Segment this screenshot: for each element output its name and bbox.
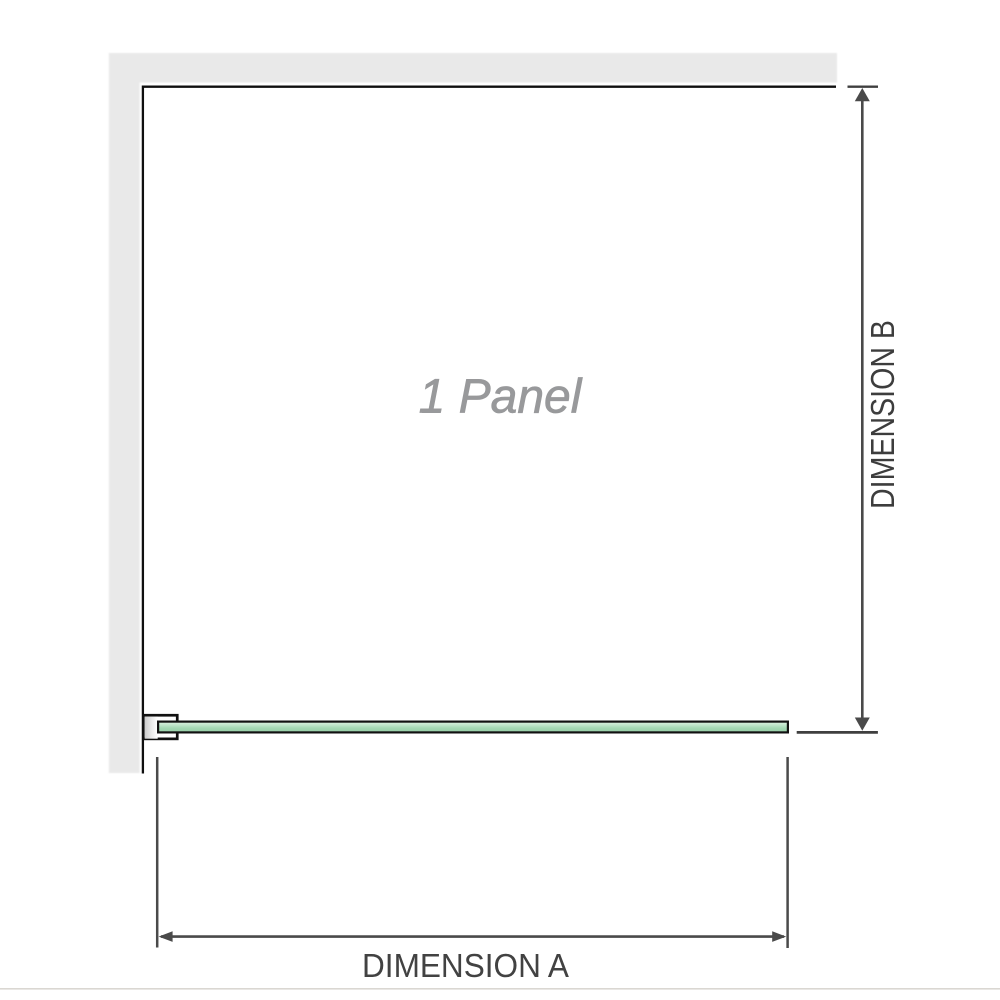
svg-text:DIMENSION B: DIMENSION B	[864, 320, 901, 509]
svg-text:1 Panel: 1 Panel	[419, 371, 583, 424]
svg-text:DIMENSION A: DIMENSION A	[362, 947, 569, 984]
